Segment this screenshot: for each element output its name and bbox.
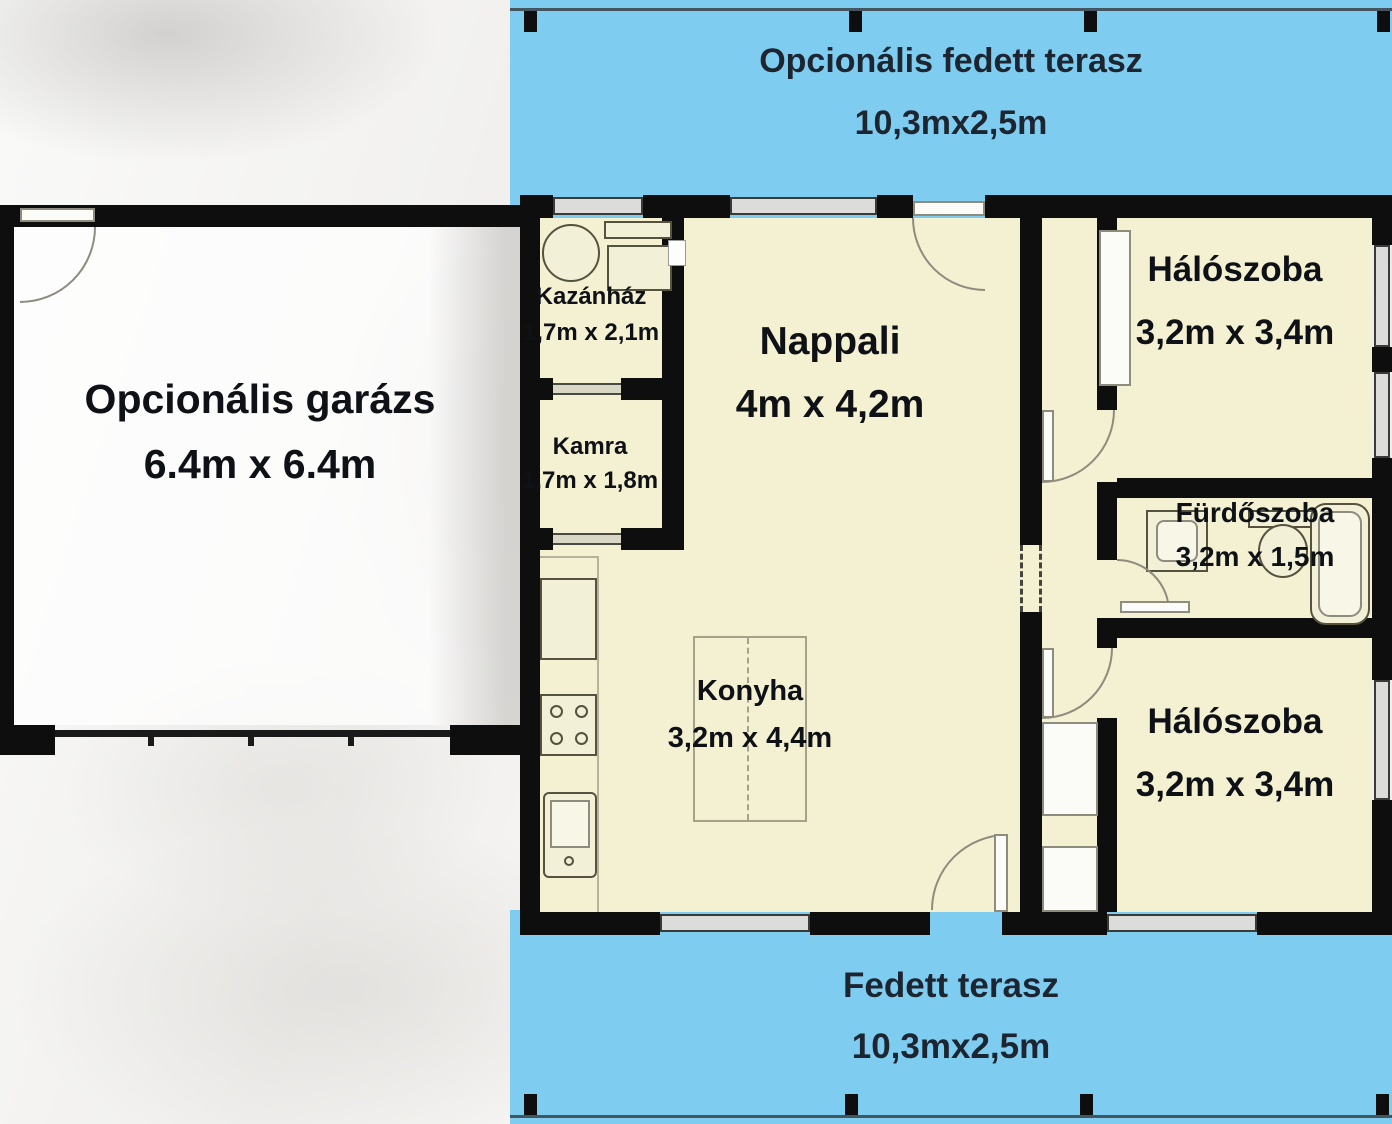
wall-segment (1002, 912, 1107, 935)
terrace-bottom-size: 10,3mx2,5m (510, 1029, 1392, 1066)
burner-icon (550, 705, 563, 718)
door-leaf (20, 208, 95, 222)
wall-segment (1097, 618, 1117, 648)
wall-segment (1372, 195, 1392, 245)
fridge (540, 578, 597, 660)
terrace-post (845, 1094, 858, 1115)
room-name: Hálószoba (1090, 252, 1380, 289)
wall-segment (1372, 800, 1392, 935)
terrace-post (524, 11, 537, 32)
door-leaf (994, 834, 1008, 912)
terrace-post (524, 1094, 537, 1115)
boiler (542, 224, 600, 282)
garage-door-tick (348, 737, 354, 746)
terrace-bottom-name: Fedett terasz (510, 968, 1392, 1005)
wall-niche (668, 240, 686, 266)
sink-basin (550, 800, 590, 848)
room-size: 1,7m x 2,1m (516, 320, 666, 345)
terrace-post (1376, 1094, 1389, 1115)
room-label-kamra: Kamra 1,7m x 1,8m (515, 434, 665, 493)
wall-segment (877, 195, 913, 218)
stove (540, 694, 597, 756)
window (553, 197, 643, 215)
room-label-haloszoba-top: Hálószoba 3,2m x 3,4m (1090, 252, 1380, 352)
garage-name: Opcionális garázs (10, 378, 510, 421)
pocket-door (553, 383, 621, 395)
room-label-haloszoba-bottom: Hálószoba 3,2m x 3,4m (1090, 704, 1380, 804)
window (730, 197, 877, 215)
terrace-post (849, 11, 862, 32)
wall-segment (450, 725, 520, 755)
garage-size: 6.4m x 6.4m (10, 443, 510, 486)
terrace-top-size: 10,3mx2,5m (510, 106, 1392, 142)
garage-door-tick (248, 737, 254, 746)
wall-segment (1020, 218, 1042, 545)
wall-segment (621, 378, 684, 400)
room-name: Kamra (515, 434, 665, 459)
room-size: 3,2m x 1,5m (1120, 542, 1390, 571)
floor-plan: Opcionális fedett terasz 10,3mx2,5m Fede… (0, 0, 1392, 1124)
terrace-post (1377, 11, 1390, 32)
wall-segment (643, 195, 730, 218)
room-size: 3,2m x 4,4m (640, 723, 860, 753)
room-size: 3,2m x 3,4m (1090, 315, 1380, 352)
sink-unit (543, 792, 597, 878)
pocket-door (553, 533, 621, 545)
wall-segment (621, 528, 684, 550)
counter-edge-line (540, 556, 597, 558)
door-leaf (1042, 648, 1054, 718)
burner-icon (575, 705, 588, 718)
terrace-top-name: Opcionális fedett terasz (510, 44, 1392, 80)
room-size: 1,7m x 1,8m (515, 468, 665, 493)
room-size: 4m x 4,2m (680, 385, 980, 426)
window (1374, 372, 1390, 458)
roof-edge-line (510, 8, 1392, 11)
wall-segment (1117, 478, 1372, 498)
terrace-top-label: Opcionális fedett terasz 10,3mx2,5m (510, 44, 1392, 141)
wardrobe (1042, 846, 1098, 912)
door-leaf (1120, 601, 1190, 613)
room-name: Hálószoba (1090, 704, 1380, 741)
room-label-furdoszoba: Fürdőszoba 3,2m x 1,5m (1120, 498, 1390, 572)
garage-door-tick (148, 737, 154, 746)
roof-edge-line (510, 1115, 1392, 1118)
counter (604, 221, 672, 239)
room-name: Fürdőszoba (1120, 498, 1390, 527)
window (1107, 914, 1257, 932)
door-leaf (1042, 410, 1054, 482)
wall-segment (985, 195, 1392, 218)
terrace-bottom-label: Fedett terasz 10,3mx2,5m (510, 968, 1392, 1066)
room-label-konyha: Konyha 3,2m x 4,4m (640, 676, 860, 754)
wall-segment (810, 912, 930, 935)
wall-segment (0, 725, 55, 755)
room-name: Konyha (640, 676, 860, 706)
hall-opening-dashed (1020, 545, 1042, 612)
room-name: Nappali (680, 322, 980, 363)
terrace-post (1084, 11, 1097, 32)
wall-segment (1097, 482, 1117, 560)
wall-segment (520, 912, 660, 935)
counter-edge-line (597, 556, 599, 912)
wall-segment (1020, 612, 1042, 912)
sink-knob (564, 856, 574, 866)
burner-icon (550, 732, 563, 745)
terrace-post (1080, 1094, 1093, 1115)
door-leaf (913, 201, 985, 216)
room-name: Kazánház (516, 284, 666, 309)
garage-label: Opcionális garázs 6.4m x 6.4m (10, 378, 510, 486)
window (660, 914, 810, 932)
wall-segment (540, 528, 553, 550)
room-label-kazanhaz: Kazánház 1,7m x 2,1m (516, 284, 666, 345)
burner-icon (575, 732, 588, 745)
room-label-nappali: Nappali 4m x 4,2m (680, 322, 980, 426)
room-size: 3,2m x 3,4m (1090, 767, 1380, 804)
garage-door-line (55, 730, 450, 737)
wall-segment (540, 378, 553, 400)
